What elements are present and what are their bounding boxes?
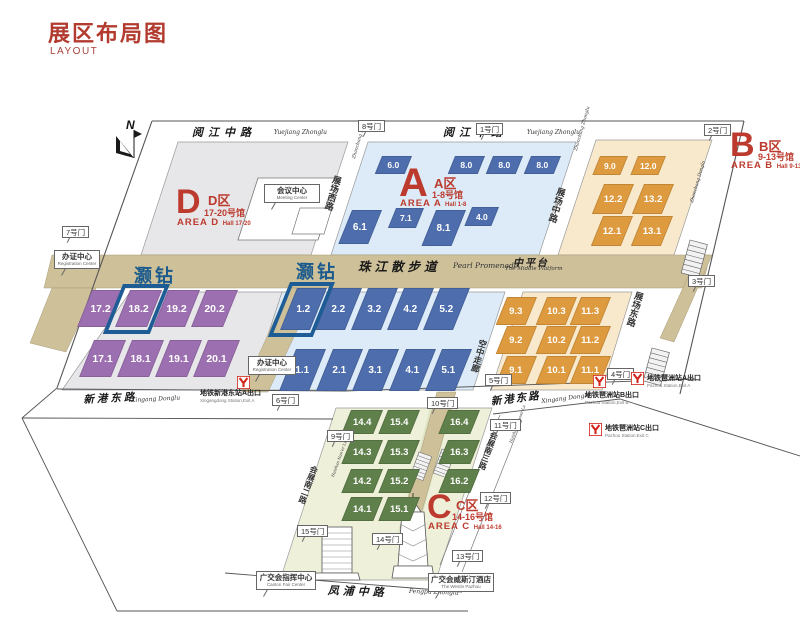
hall-label: 10.2	[547, 335, 566, 346]
road-label-xingang-west: 新港东路	[83, 389, 138, 407]
road-label-yuejiang-west-en: Yuejiang Zhonglu	[274, 129, 327, 136]
hall-label: 2.1	[333, 365, 347, 376]
hall-label: 16.4	[450, 417, 469, 428]
metro-exit-name-zh: 地铁新港东站A出口	[200, 390, 261, 398]
hall-label: 17.1	[92, 353, 112, 365]
gate-6号门: 6号门	[272, 394, 299, 406]
hall-label: 15.4	[390, 417, 409, 428]
metro-icon-pazhou-a	[631, 372, 644, 390]
gate-15号门: 15号门	[297, 525, 328, 537]
road-label-yuejiang-west: 阅江中路	[192, 124, 256, 140]
metro-exit-name-zh: 地铁琶洲站C出口	[605, 425, 659, 433]
gate-13号门: 13号门	[452, 550, 483, 562]
hall-label: 5.2	[440, 304, 454, 315]
hall-label: 7.1	[400, 213, 412, 223]
hall-label: 6.1	[353, 222, 367, 233]
callout-en: Registration Center	[251, 367, 293, 373]
hall-label: 14.2	[353, 476, 372, 487]
hall-label: 8.0	[498, 160, 510, 170]
metro-exit-name-en: Pazhou Station,Exit A	[647, 383, 701, 389]
hall-label: 14.3	[353, 447, 372, 458]
hall-label: 12.0	[640, 161, 657, 171]
metro-icon-pazhou-c	[589, 423, 602, 441]
gate-1号门: 1号门	[476, 123, 503, 135]
area-a-name-en: AREA A Hall 1-8	[400, 198, 466, 209]
hall-label: 9.2	[510, 335, 523, 346]
hall-label: 15.2	[390, 476, 409, 487]
hall-label: 4.0	[476, 212, 488, 222]
north-arrow-icon	[116, 130, 142, 158]
hall-label: 16.3	[450, 447, 469, 458]
hall-label: 3.1	[369, 365, 383, 376]
road-label-pearl-promenade: 珠江散步道	[358, 256, 441, 275]
hall-label: 15.3	[390, 447, 409, 458]
gate-3号门: 3号门	[688, 275, 715, 287]
metro-exit-name-en: Pazhou Station,Exit C	[605, 433, 659, 439]
metro-icon-pazhou-b	[593, 375, 606, 393]
area-d-name-en: AREA D Hall 17-20	[177, 217, 251, 228]
hall-label: 6.0	[387, 160, 399, 170]
hall-label: 20.2	[204, 303, 224, 315]
north-label: N	[126, 118, 135, 132]
special-label-haozuan-0: 灏钻	[134, 262, 176, 288]
road-label-fengpu: 凤浦中路	[327, 582, 388, 600]
gate-9号门: 9号门	[327, 430, 354, 442]
hall-label: 13.1	[643, 226, 662, 237]
road-label-middle-platform-en: The Middle Platform	[505, 266, 563, 272]
hall-label: 4.1	[406, 365, 420, 376]
callout-zh: 办证中心	[57, 252, 97, 261]
metro-label-xingangdong-a: 地铁新港东站A出口Xingangdong Station,Exit A	[200, 390, 261, 404]
callout-en: Meeting Center	[267, 195, 317, 201]
gate-2号门: 2号门	[704, 124, 731, 136]
area-a-letter: A	[399, 163, 428, 203]
metro-label-pazhou-c: 地铁琶洲站C出口Pazhou Station,Exit C	[605, 425, 659, 439]
hall-label: 11.1	[581, 365, 599, 376]
hall-label: 8.1	[437, 223, 451, 234]
callout-canton-fair-center: 广交会指挥中心Canton Fair Center	[256, 571, 316, 590]
gate-14号门: 14号门	[372, 533, 403, 545]
callout-en: Registration Center	[57, 261, 97, 267]
hall-label: 15.1	[390, 504, 409, 515]
gate-7号门: 7号门	[62, 226, 89, 238]
callout-zh: 广交会威斯汀酒店	[431, 575, 491, 584]
hall-label: 20.1	[206, 353, 226, 365]
callout-zh: 广交会指挥中心	[259, 573, 313, 582]
hall-label: 12.2	[604, 194, 623, 205]
gate-11号门: 11号门	[490, 419, 521, 431]
hall-label: 14.1	[353, 504, 372, 515]
hall-label: 17.2	[90, 303, 110, 315]
gate-12号门: 12号门	[480, 492, 511, 504]
area-c-letter: C	[427, 490, 452, 524]
gate-8号门: 8号门	[358, 120, 385, 132]
hall-label: 1.1	[296, 365, 310, 376]
metro-exit-name-zh: 地铁琶洲站A出口	[647, 375, 701, 383]
hall-label: 10.3	[547, 306, 566, 317]
hall-label: 8.0	[536, 160, 548, 170]
hall-label: 10.1	[547, 365, 566, 376]
hall-label: 4.2	[404, 304, 418, 315]
hall-label: 14.4	[353, 417, 372, 428]
layout-map-page: 展区布局图 LAYOUT	[0, 0, 800, 625]
hall-label: 18.1	[130, 353, 150, 365]
special-label-haozuan-1: 灏钻	[296, 258, 338, 284]
metro-label-pazhou-a: 地铁琶洲站A出口Pazhou Station,Exit A	[647, 375, 701, 389]
hall-label: 5.1	[442, 365, 456, 376]
hall-label: 11.2	[581, 335, 599, 346]
hall-label: 19.1	[168, 353, 188, 365]
metro-exit-name-en: Xingangdong Station,Exit A	[200, 398, 261, 404]
hall-label: 9.3	[510, 306, 523, 317]
callout-zh: 办证中心	[251, 358, 293, 367]
area-c-name-en: AREA C Hall 14-16	[428, 521, 502, 532]
hall-label: 9.0	[604, 161, 616, 171]
callout-en: Canton Fair Center	[259, 582, 313, 588]
callout-en: The Westin Pazhou	[431, 584, 491, 590]
callout-zh: 会议中心	[267, 186, 317, 195]
road-label-yuejiang-east-en: Yuejiang Zhonglu	[527, 129, 580, 136]
metro-label-pazhou-b: 地铁琶洲站B出口Pazhou Station,Exit B	[585, 392, 639, 406]
hall-label: 11.3	[581, 306, 599, 317]
hall-label: 3.2	[368, 304, 382, 315]
area-d-letter: D	[176, 185, 201, 219]
hall-label: 19.2	[166, 303, 186, 315]
hall-label: 8.0	[460, 160, 472, 170]
hall-label: 12.1	[603, 226, 622, 237]
metro-exit-name-en: Pazhou Station,Exit B	[585, 400, 639, 406]
area-b-letter: B	[730, 128, 755, 162]
hall-label: 16.2	[450, 476, 469, 487]
gate-5号门: 5号门	[485, 374, 512, 386]
hall-label: 13.2	[644, 194, 663, 205]
hall-label: 2.2	[332, 304, 346, 315]
callout-registration-mid: 办证中心Registration Center	[248, 356, 296, 375]
area-b-name-en: AREA B Hall 9-13	[731, 160, 800, 171]
callout-registration-west: 办证中心Registration Center	[54, 250, 100, 269]
gate-10号门: 10号门	[427, 397, 458, 409]
metro-exit-name-zh: 地铁琶洲站B出口	[585, 392, 639, 400]
callout-westin-hotel: 广交会威斯汀酒店The Westin Pazhou	[428, 573, 494, 592]
callout-meeting-center: 会议中心Meeting Center	[264, 184, 320, 203]
